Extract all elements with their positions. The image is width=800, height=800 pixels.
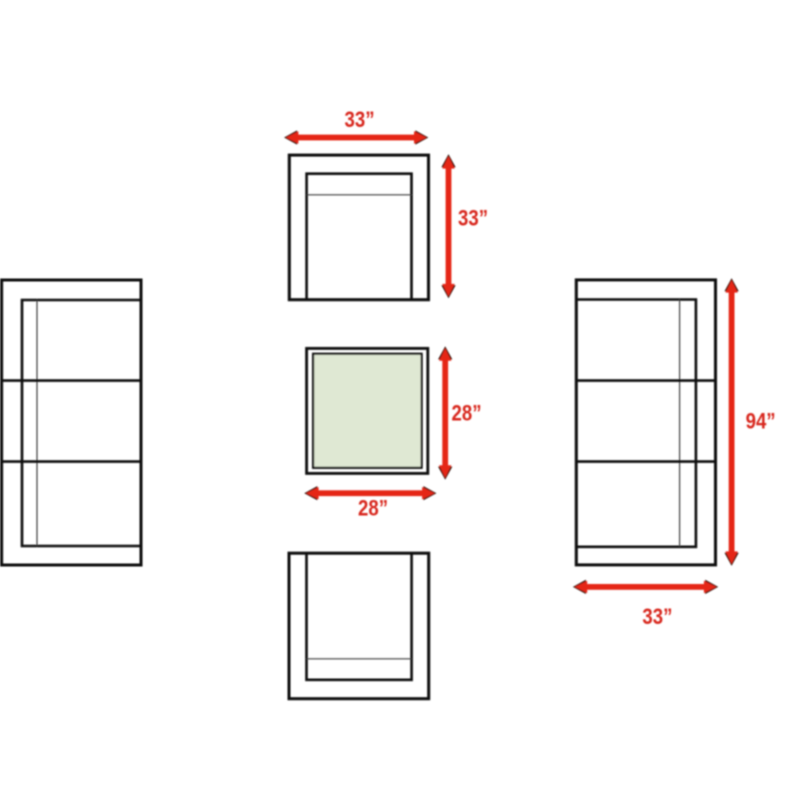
svg-text:28”: 28”: [358, 495, 388, 520]
svg-text:33”: 33”: [345, 107, 375, 132]
svg-text:94”: 94”: [746, 408, 776, 433]
svg-text:33”: 33”: [458, 206, 488, 231]
svg-text:28”: 28”: [452, 400, 482, 425]
svg-text:33”: 33”: [642, 604, 672, 629]
